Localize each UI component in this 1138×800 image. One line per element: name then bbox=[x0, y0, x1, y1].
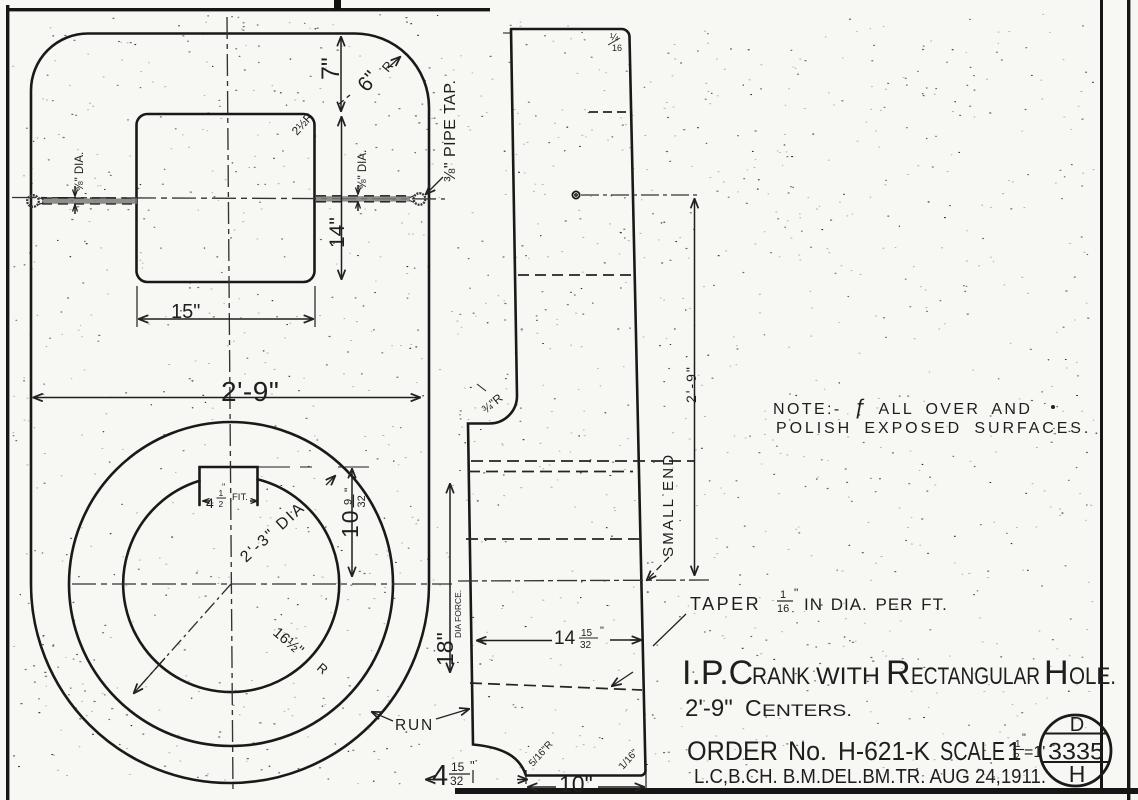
svg-text:TAPER: TAPER bbox=[690, 594, 761, 614]
svg-text:4: 4 bbox=[432, 760, 448, 792]
svg-text:OLE.: OLE. bbox=[1069, 663, 1116, 690]
svg-text:7": 7" bbox=[317, 57, 345, 80]
svg-text:D: D bbox=[1070, 714, 1084, 736]
svg-text:ECTANGULAR: ECTANGULAR bbox=[911, 663, 1040, 690]
svg-text:2: 2 bbox=[1014, 752, 1020, 763]
svg-text:32: 32 bbox=[580, 640, 592, 651]
svg-text:IN DIA. PER FT.: IN DIA. PER FT. bbox=[804, 595, 948, 614]
svg-text:15: 15 bbox=[581, 628, 593, 639]
svg-text:C: C bbox=[745, 695, 762, 721]
svg-text:I.P.C: I.P.C bbox=[682, 654, 753, 692]
svg-text:SCALE: SCALE bbox=[940, 736, 1005, 766]
svg-text:": " bbox=[794, 586, 798, 600]
svg-text:16: 16 bbox=[777, 603, 789, 615]
svg-text:R: R bbox=[886, 654, 911, 692]
svg-text:SMALL END: SMALL END bbox=[660, 453, 677, 557]
svg-text:15: 15 bbox=[451, 760, 465, 774]
svg-text:32: 32 bbox=[450, 774, 464, 788]
svg-text:No.: No. bbox=[788, 736, 827, 766]
svg-text:": " bbox=[342, 488, 356, 492]
svg-text:POLISH EXPOSED SURFACES.: POLISH EXPOSED SURFACES. bbox=[776, 420, 1091, 437]
svg-text:2'-9": 2'-9" bbox=[221, 376, 279, 407]
svg-text:1: 1 bbox=[1015, 739, 1021, 750]
svg-text:10: 10 bbox=[337, 508, 363, 538]
svg-text:⅜" PIPE TAP.: ⅜" PIPE TAP. bbox=[442, 80, 459, 182]
svg-text:⅜" DIA.: ⅜" DIA. bbox=[357, 150, 369, 189]
svg-text:WITH: WITH bbox=[816, 663, 880, 690]
svg-text:L.C,B.CH. B.M.DEL.BM.TR. AUG 2: L.C,B.CH. B.M.DEL.BM.TR. AUG 24,1911. bbox=[694, 766, 1046, 788]
svg-text:15": 15" bbox=[171, 301, 200, 323]
svg-text:10": 10" bbox=[559, 771, 593, 797]
svg-text:1: 1 bbox=[780, 589, 786, 601]
svg-text:RANK: RANK bbox=[752, 663, 810, 690]
svg-text:H: H bbox=[1069, 761, 1086, 787]
svg-text:ORDER: ORDER bbox=[687, 736, 778, 766]
svg-text:": " bbox=[222, 482, 225, 492]
svg-text:16: 16 bbox=[612, 43, 622, 53]
svg-text:H: H bbox=[1044, 654, 1069, 692]
svg-text:32: 32 bbox=[356, 495, 368, 507]
svg-text:FIT.: FIT. bbox=[232, 492, 248, 503]
svg-text:": " bbox=[470, 758, 475, 773]
svg-text:H-621-K: H-621-K bbox=[838, 736, 931, 766]
svg-text:": " bbox=[1022, 732, 1026, 744]
svg-text:14": 14" bbox=[326, 217, 349, 248]
svg-text:": " bbox=[600, 625, 604, 637]
svg-text:2'-9": 2'-9" bbox=[683, 365, 699, 403]
svg-text:9: 9 bbox=[343, 499, 355, 505]
svg-text:RUN: RUN bbox=[395, 717, 434, 734]
svg-text:2'-9": 2'-9" bbox=[685, 695, 733, 722]
svg-text:ENTERS.: ENTERS. bbox=[762, 701, 852, 720]
svg-text:DIA FORCE.: DIA FORCE. bbox=[453, 590, 463, 638]
svg-text:14: 14 bbox=[554, 628, 576, 649]
svg-text:4: 4 bbox=[206, 495, 214, 511]
svg-text:⅜" DIA.: ⅜" DIA. bbox=[74, 152, 86, 191]
svg-text:2: 2 bbox=[219, 499, 224, 509]
